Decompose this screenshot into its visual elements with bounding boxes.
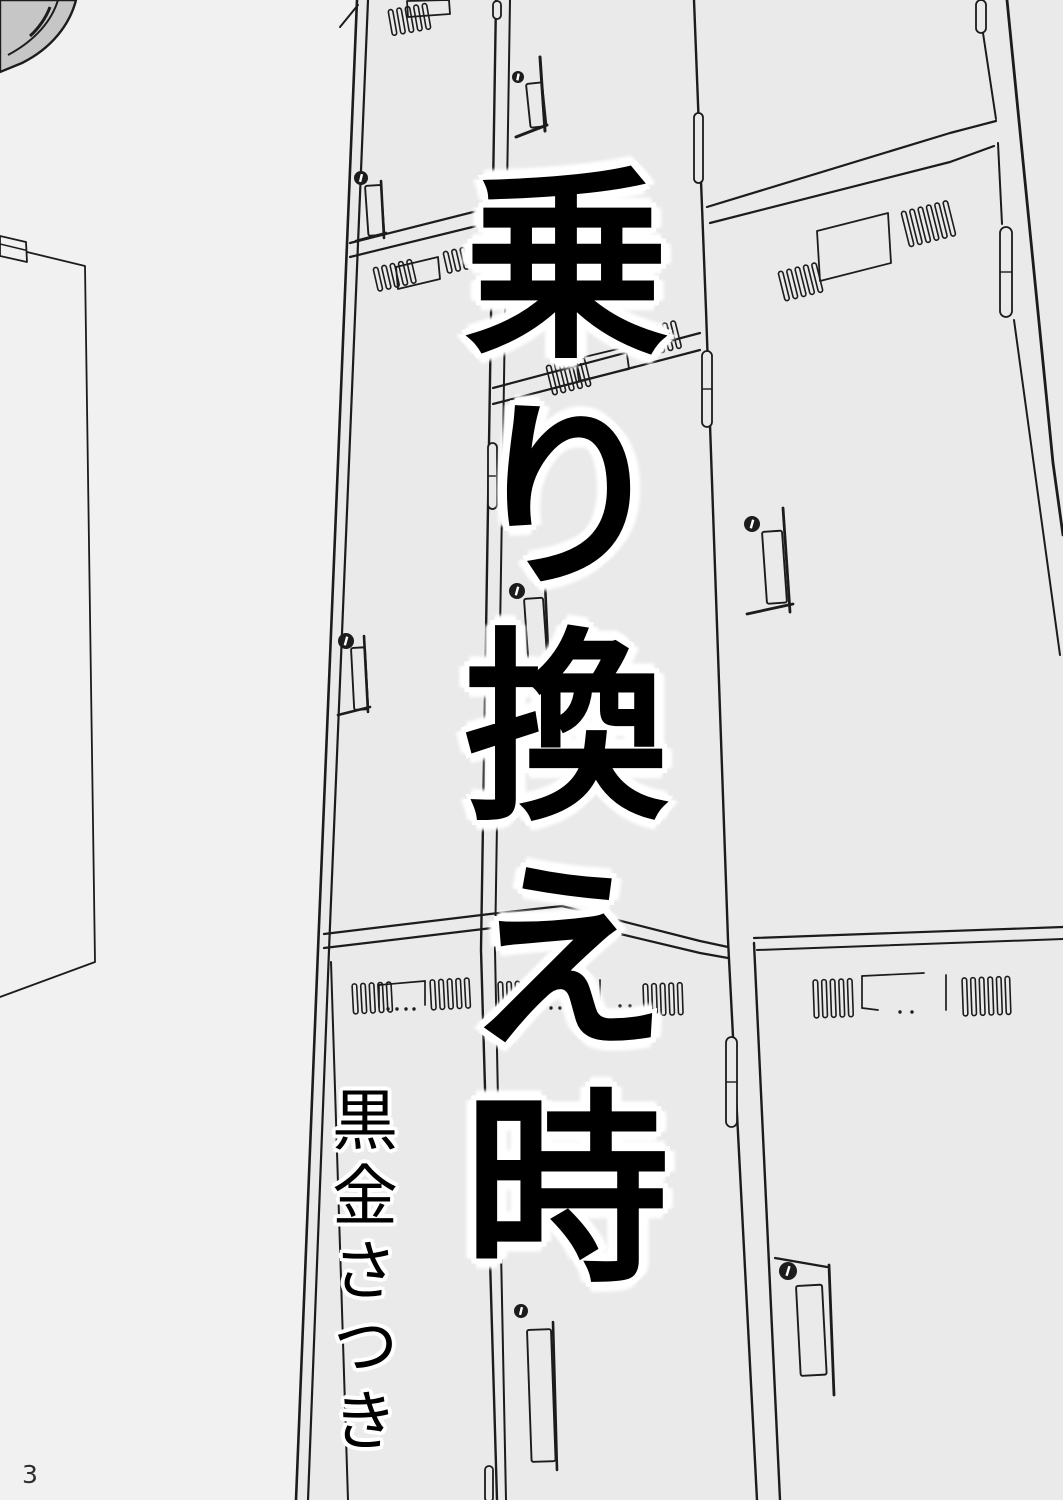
author-name: 黒金さつき: [326, 1086, 392, 1461]
manga-title-page: 乗り換え時 黒金さつき 3: [0, 0, 1063, 1500]
page-number: 3: [22, 1460, 38, 1489]
page-title: 乗り換え時: [446, 158, 651, 1313]
